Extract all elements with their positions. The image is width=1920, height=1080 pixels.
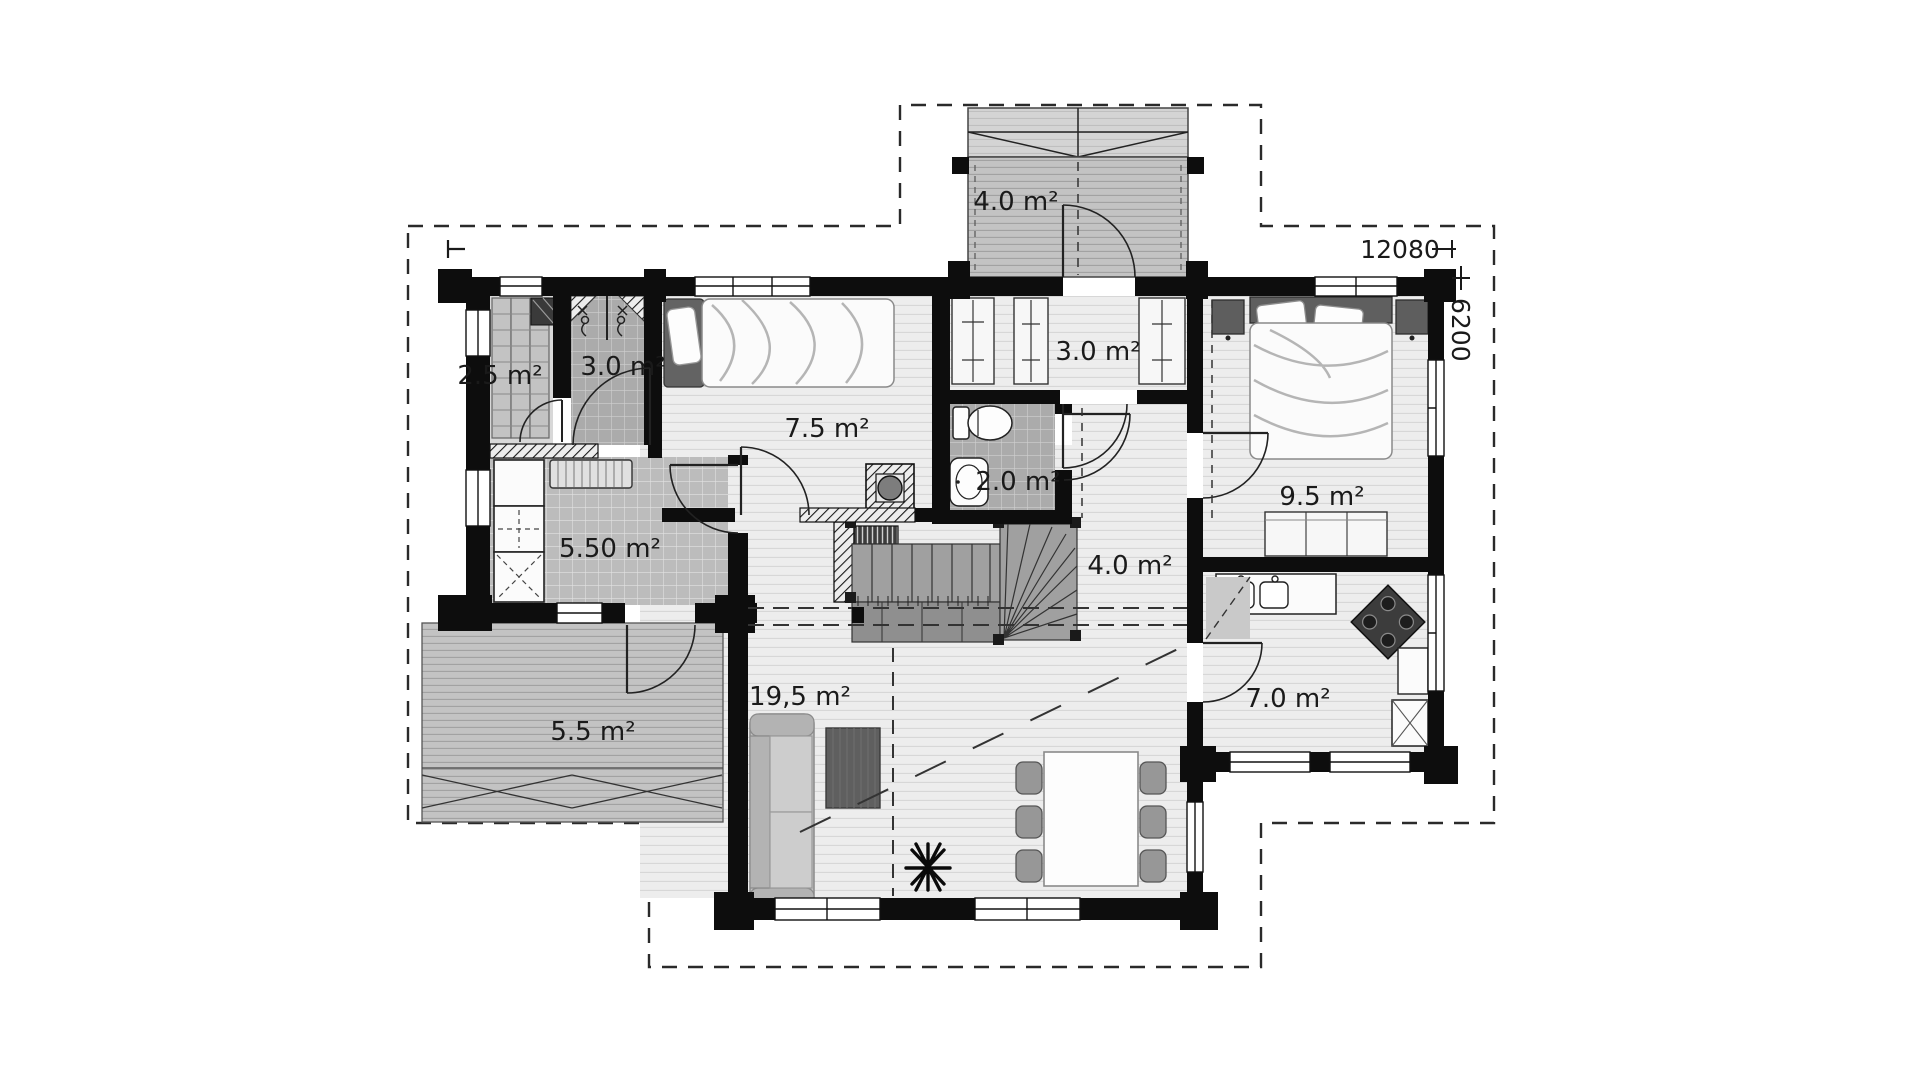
room-label-terrace: 5.5 m² — [550, 717, 635, 747]
room-label-bedroom-master: 9.5 m² — [1279, 482, 1364, 512]
room-label-sauna: 2.5 m² — [457, 361, 542, 391]
nightstand-icon — [1396, 300, 1428, 334]
section-tick-icon — [448, 240, 465, 258]
dimension-width: 12080 — [1360, 235, 1456, 264]
room-label-wc: 2.0 m² — [975, 467, 1060, 497]
toilet-icon — [953, 406, 1012, 440]
dimension-width-label: 12080 — [1360, 235, 1440, 264]
room-label-hall: 4.0 m² — [1087, 551, 1172, 581]
room-label-utility: 5.50 m² — [559, 534, 661, 564]
coffee-table — [826, 728, 880, 808]
room-label-entry-closet: 3.0 m² — [1055, 337, 1140, 367]
wardrobe-row — [1265, 512, 1387, 556]
dimension-depth-label: 6200 — [1446, 298, 1475, 362]
floor-plan-page: 4.0 m² 2.5 m² 3.0 m² 7.5 m² 3.0 m² 2.0 m… — [0, 0, 1920, 1080]
bed-single — [664, 299, 894, 387]
floor-plan-svg: 4.0 m² 2.5 m² 3.0 m² 7.5 m² 3.0 m² 2.0 m… — [0, 0, 1920, 1080]
room-label-bedroom-small: 7.5 m² — [784, 414, 869, 444]
sofa — [750, 714, 814, 910]
fridge-icon — [1392, 700, 1428, 746]
nightstand-icon — [1212, 300, 1244, 334]
dining-set — [1016, 752, 1166, 886]
tech-space — [1206, 577, 1250, 639]
cabinet-icon — [494, 460, 544, 506]
plant-icon — [906, 844, 950, 890]
bench-icon — [550, 460, 632, 488]
wardrobe — [952, 298, 994, 384]
dining-table — [1044, 752, 1138, 886]
room-label-kitchen: 7.0 m² — [1245, 684, 1330, 714]
room-label-porch: 4.0 m² — [973, 187, 1058, 217]
room-label-shower: 3.0 m² — [580, 352, 665, 382]
room-label-living: 19,5 m² — [749, 682, 851, 712]
